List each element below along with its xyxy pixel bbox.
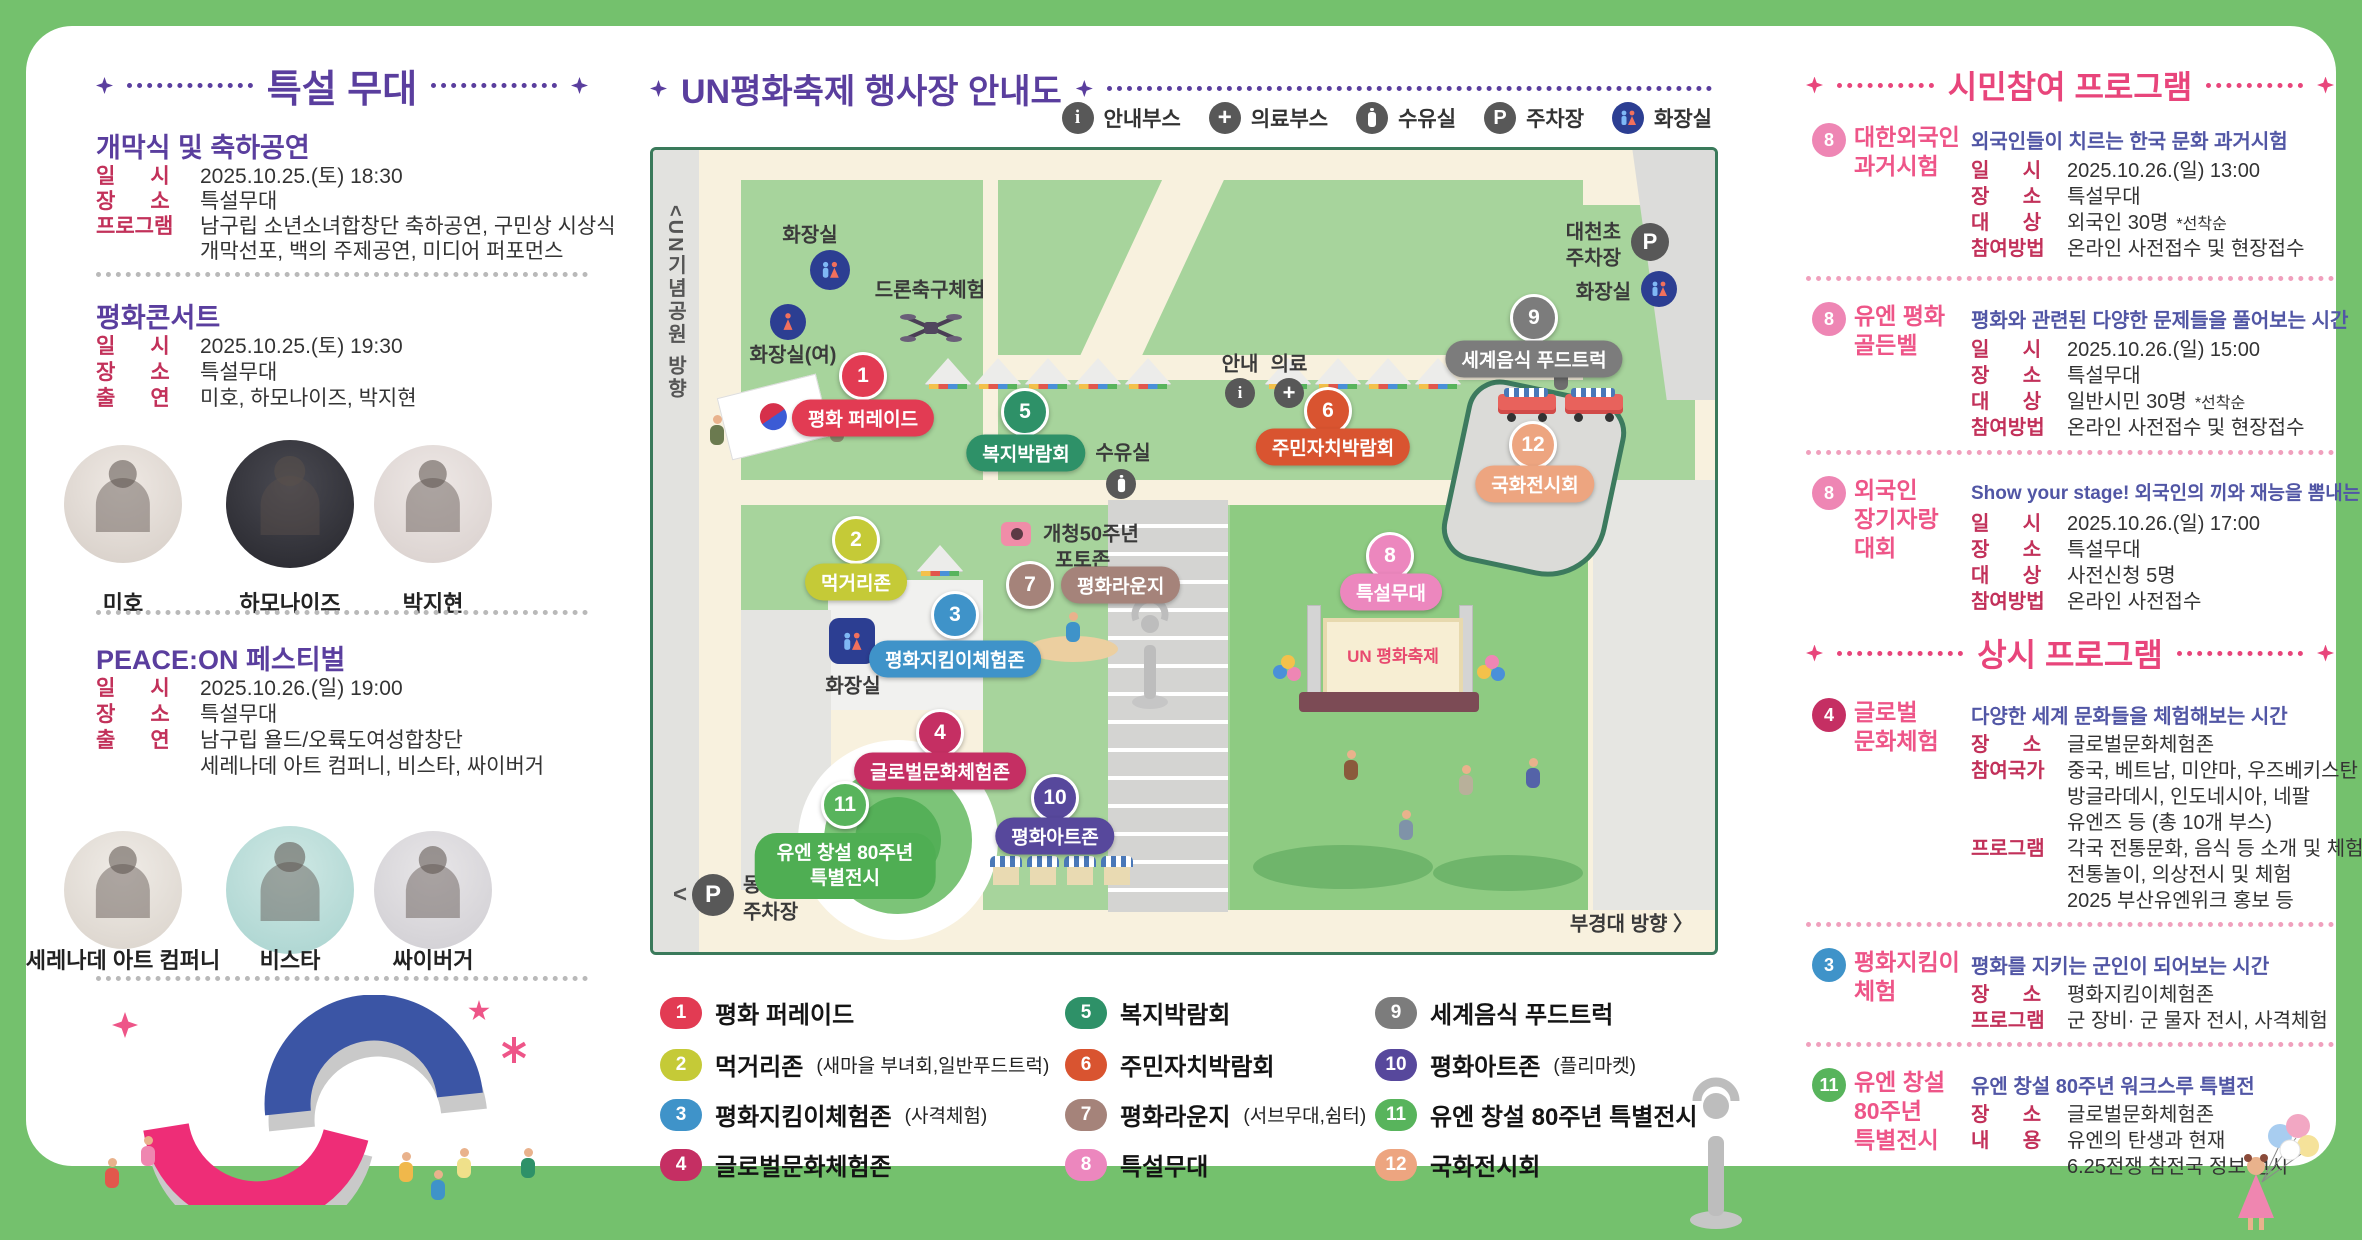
row-value: 군 장비· 군 물자 전시, 사격체험 bbox=[2067, 1004, 2328, 1033]
row-label: 장 소 bbox=[1971, 728, 2067, 757]
map-marker-11: 11 bbox=[821, 781, 869, 829]
dancing-person bbox=[1458, 765, 1474, 797]
legend-note: (서브무대,쉼터) bbox=[1243, 1101, 1366, 1128]
row-label: 내 용 bbox=[1971, 1124, 2067, 1153]
info-row: 장 소특설무대 bbox=[1971, 533, 2141, 562]
map-grass-block bbox=[998, 180, 1583, 355]
dotted-divider bbox=[1806, 450, 2334, 455]
row-value: 온라인 사전접수 및 현장접수 bbox=[2067, 232, 2304, 261]
row-value: 2025.10.26.(일) 17:00 bbox=[2067, 507, 2260, 536]
performer-name: 비스타 bbox=[260, 943, 321, 975]
legend-label: 평화지킴이체험존 bbox=[715, 1097, 892, 1132]
program-title-line: 과거시험 bbox=[1854, 152, 1969, 181]
program-title-line: 80주년 bbox=[1854, 1097, 1969, 1126]
legend-item: 10평화아트존(플리마켓) bbox=[1375, 1047, 1636, 1082]
dotted-leader bbox=[1837, 83, 1934, 88]
map-pill-3: 평화지킴이체험존 bbox=[869, 641, 1041, 678]
program-badge: 4 bbox=[1812, 698, 1846, 732]
legend-item: 2먹거리존(새마을 부녀회,일반푸드트럭) bbox=[660, 1047, 1049, 1082]
dotted-divider bbox=[1806, 276, 2334, 281]
person-silhouette-icon bbox=[96, 864, 150, 918]
program-title-line: 체험 bbox=[1854, 977, 1969, 1006]
tent-icon bbox=[1075, 358, 1121, 394]
crowd-person bbox=[456, 1148, 472, 1180]
legend-icon-label: 화장실 bbox=[1654, 103, 1712, 133]
row-label: 프로그램 bbox=[1971, 832, 2067, 861]
row-value: 온라인 사전접수 및 현장접수 bbox=[2067, 411, 2304, 440]
legend-badge: 3 bbox=[660, 1099, 702, 1131]
balloons-icon bbox=[1281, 655, 1295, 669]
info-row: 출 연미호, 하모나이즈, 박지현 bbox=[96, 382, 417, 412]
nursing-label: 수유실 bbox=[1095, 437, 1150, 466]
performer-photo bbox=[64, 445, 182, 563]
row-value: 2025 부산유엔위크 홍보 등 bbox=[2067, 884, 2294, 913]
person-silhouette-icon bbox=[261, 862, 320, 921]
info-row: 대 상사전신청 5명 bbox=[1971, 559, 2176, 588]
legend-item: 9세계음식 푸드트럭 bbox=[1375, 995, 1613, 1030]
map-hill bbox=[1253, 845, 1433, 889]
row-value: 유엔의 탄생과 현재 bbox=[2067, 1124, 2225, 1153]
medical-cross-icon: + bbox=[1209, 102, 1241, 134]
daecheon-parking-label: 주차장 bbox=[1566, 242, 1621, 271]
program-title: 대한외국인과거시험 bbox=[1854, 123, 1969, 181]
legend-badge: 7 bbox=[1065, 1099, 1107, 1131]
map-pill-9: 세계음식 푸드트럭 bbox=[1445, 341, 1622, 378]
map-pill-10: 평화아트존 bbox=[995, 818, 1114, 855]
food-truck-icon bbox=[1565, 388, 1623, 422]
diamond-icon bbox=[650, 80, 667, 97]
map-marker-1: 1 bbox=[839, 352, 887, 400]
dancing-person bbox=[1343, 750, 1359, 782]
bukyeong-direction-label: 부경대 방향 〉 bbox=[1570, 908, 1693, 937]
toilet-icon bbox=[1612, 102, 1644, 134]
right-header-2: 상시 프로그램 bbox=[1806, 630, 2334, 676]
program-desc: 외국인들이 치르는 한국 문화 과거시험 bbox=[1971, 125, 2288, 154]
dongmyeong-parking-label: 주차장 bbox=[743, 896, 798, 925]
market-stall-icon bbox=[1027, 856, 1059, 888]
row-label: 참여방법 bbox=[1971, 411, 2067, 440]
special-exhibit-line2: 특별전시 bbox=[777, 866, 914, 891]
left-panel-title: 특설 무대 bbox=[267, 58, 417, 113]
program-title: 유엔 평화골든벨 bbox=[1854, 302, 1969, 360]
person-silhouette-icon bbox=[406, 478, 460, 532]
toilet-icon bbox=[1641, 271, 1677, 307]
legend-label: 먹거리존 bbox=[715, 1047, 803, 1082]
program-desc: 평화를 지키는 군인이 되어보는 시간 bbox=[1971, 950, 2269, 979]
info-row: 유엔즈 등 (총 10개 부스) bbox=[2067, 806, 2272, 835]
dotted-divider bbox=[96, 610, 588, 615]
busker-person bbox=[1065, 612, 1081, 644]
legend-label: 유엔 창설 80주년 특별전시 bbox=[1430, 1097, 1698, 1132]
info-row: 참여방법온라인 사전접수 및 현장접수 bbox=[1971, 411, 2304, 440]
map-pill-2: 먹거리존 bbox=[805, 564, 907, 601]
legend-label: 평화 퍼레이드 bbox=[715, 995, 854, 1030]
info-row: 방글라데시, 인도네시아, 네팔 bbox=[2067, 780, 2310, 809]
program-title: 글로벌문화체험 bbox=[1854, 698, 1969, 756]
program-desc: 다양한 세계 문화들을 체험해보는 시간 bbox=[1971, 700, 2288, 729]
peace-statue-illustration bbox=[1686, 1058, 1746, 1235]
row-label: 출 연 bbox=[96, 382, 200, 412]
row-value: 세레나데 아트 컴퍼니, 비스타, 싸이버거 bbox=[200, 750, 544, 780]
legend-label: 국화전시회 bbox=[1430, 1147, 1540, 1182]
legend-badge: 2 bbox=[660, 1049, 702, 1081]
crowd-person bbox=[140, 1136, 156, 1168]
legend-item: 5복지박람회 bbox=[1065, 995, 1230, 1030]
map-legend-icon-row: i안내부스 +의료부스 수유실 P주차장 화장실 bbox=[1062, 102, 1712, 134]
dotted-divider bbox=[1806, 922, 2334, 927]
dotted-leader bbox=[431, 83, 557, 88]
legend-label: 특설무대 bbox=[1120, 1147, 1208, 1182]
info-row: 대 상외국인 30명*선착순 bbox=[1971, 206, 2227, 235]
person-silhouette-icon bbox=[96, 478, 150, 532]
legend-item: 4글로벌문화체험존 bbox=[660, 1147, 892, 1182]
market-stall-icon bbox=[1101, 856, 1133, 888]
row-label: 대 상 bbox=[1971, 559, 2067, 588]
diamond-icon bbox=[1806, 645, 1823, 662]
dotted-divider bbox=[96, 272, 588, 277]
info-row: 참여국가중국, 베트남, 미얀마, 우즈베키스탄 bbox=[1971, 754, 2358, 783]
toilet-right-label: 화장실 bbox=[1576, 276, 1631, 305]
venue-map: <UN기념공원 방향 화장실 드론축구체험 화장실(여) 1 평화 퍼레이드 5… bbox=[650, 147, 1718, 955]
row-label: 출 연 bbox=[96, 724, 200, 754]
dancing-person bbox=[1525, 758, 1541, 790]
row-value: 글로벌문화체험존 bbox=[2067, 728, 2214, 757]
dotted-leader bbox=[127, 83, 253, 88]
program-title-line: 유엔 창설 bbox=[1854, 1068, 1969, 1097]
peace-swirl-illustration bbox=[130, 995, 510, 1210]
row-value: 개막선포, 백의 주제공연, 미디어 퍼포먼스 bbox=[200, 235, 563, 265]
legend-label: 주민자치박람회 bbox=[1120, 1047, 1275, 1082]
map-title: UN평화축제 행사장 안내도 bbox=[681, 64, 1062, 113]
program-desc: 평화와 관련된 다양한 문제들을 풀어보는 시간 bbox=[1971, 304, 2348, 333]
program-desc: Show your stage! 외국인의 끼와 재능을 뽐내는 시간 bbox=[1971, 478, 2362, 505]
row-label: 장 소 bbox=[1971, 1098, 2067, 1127]
map-marker-7: 7 bbox=[1006, 561, 1054, 609]
legend-label: 복지박람회 bbox=[1120, 995, 1230, 1030]
bottle-icon bbox=[1106, 469, 1136, 499]
drone-icon bbox=[900, 310, 962, 351]
map-pill-5: 복지박람회 bbox=[966, 435, 1085, 472]
citizen-programs-title: 시민참여 프로그램 bbox=[1948, 62, 2192, 108]
right-header-1: 시민참여 프로그램 bbox=[1806, 62, 2334, 108]
crowd-person bbox=[430, 1170, 446, 1202]
info-row: 전통놀이, 의상전시 및 체험 bbox=[2067, 858, 2292, 887]
program-title: 평화지킴이체험 bbox=[1854, 948, 1969, 1006]
row-label: 일 시 bbox=[1971, 507, 2067, 536]
legend-note: (플리마켓) bbox=[1553, 1051, 1636, 1078]
parking-icon: P bbox=[1484, 102, 1516, 134]
legend-badge: 12 bbox=[1375, 1149, 1417, 1181]
legend-badge: 8 bbox=[1065, 1149, 1107, 1181]
photozone-label: 개청50주년 bbox=[1043, 518, 1139, 547]
info-row: 프로그램군 장비· 군 물자 전시, 사격체험 bbox=[1971, 1004, 2328, 1033]
row-value: 특설무대 bbox=[2067, 180, 2141, 209]
legend-item: 12국화전시회 bbox=[1375, 1147, 1540, 1182]
market-stall-icon bbox=[990, 856, 1022, 888]
legend-item: 6주민자치박람회 bbox=[1065, 1047, 1275, 1082]
map-pill-1: 평화 퍼레이드 bbox=[792, 400, 934, 437]
program-title-line: 평화지킴이 bbox=[1854, 948, 1969, 977]
legend-item: 7평화라운지(서브무대,쉼터) bbox=[1065, 1097, 1366, 1132]
legend-note: (새마을 부녀회,일반푸드트럭) bbox=[816, 1051, 1049, 1078]
stage-truss bbox=[1307, 605, 1321, 699]
row-label: 프로그램 bbox=[96, 210, 200, 240]
special-exhibit-line1: 유엔 창설 80주년 bbox=[777, 841, 914, 866]
performer-photo bbox=[374, 831, 492, 949]
balloons-icon bbox=[1485, 655, 1499, 669]
map-marker-9: 9 bbox=[1510, 294, 1558, 342]
row-value: 글로벌문화체험존 bbox=[2067, 1098, 2214, 1127]
row-value: 외국인 30명 bbox=[2067, 206, 2168, 235]
row-value: 평화지킴이체험존 bbox=[2067, 978, 2214, 1007]
drone-soccer-label: 드론축구체험 bbox=[875, 274, 985, 303]
program-badge: 8 bbox=[1812, 302, 1846, 336]
regular-programs-title: 상시 프로그램 bbox=[1977, 630, 2163, 676]
row-value: 2025.10.26.(일) 15:00 bbox=[2067, 333, 2260, 362]
row-label: 참여방법 bbox=[1971, 585, 2067, 614]
performer-photo bbox=[226, 826, 354, 954]
legend-item: 3평화지킴이체험존(사격체험) bbox=[660, 1097, 987, 1132]
crowd-person bbox=[520, 1148, 536, 1180]
legend-parking: P주차장 bbox=[1484, 102, 1584, 134]
row-label: 장 소 bbox=[1971, 180, 2067, 209]
program-badge: 11 bbox=[1812, 1068, 1846, 1102]
info-icon: i bbox=[1062, 102, 1094, 134]
legend-item: 8특설무대 bbox=[1065, 1147, 1208, 1182]
program-title-line: 문화체험 bbox=[1854, 727, 1969, 756]
row-label: 대 상 bbox=[1971, 206, 2067, 235]
dotted-leader bbox=[1837, 651, 1963, 656]
program-title: 외국인장기자랑대회 bbox=[1854, 476, 1969, 563]
program-title-line: 특별전시 bbox=[1854, 1126, 1969, 1155]
tent-icon bbox=[917, 545, 963, 581]
row-label: 장 소 bbox=[1971, 359, 2067, 388]
row-value: 미호, 하모나이즈, 박지현 bbox=[200, 382, 417, 412]
performer-photo bbox=[374, 445, 492, 563]
program-desc: 유엔 창설 80주년 워크스루 특별전 bbox=[1971, 1070, 2255, 1099]
legend-badge: 11 bbox=[1375, 1099, 1417, 1131]
map-pill-6: 주민자치박람회 bbox=[1256, 429, 1410, 466]
program-title: 유엔 창설80주년특별전시 bbox=[1854, 1068, 1969, 1155]
program-title-line: 외국인 bbox=[1854, 476, 1969, 505]
map-marker-5: 5 bbox=[1001, 388, 1049, 436]
info-row: 2025 부산유엔위크 홍보 등 bbox=[2067, 884, 2294, 913]
legend-icon-label: 안내부스 bbox=[1104, 103, 1181, 133]
row-label: 대 상 bbox=[1971, 385, 2067, 414]
dotted-leader bbox=[2206, 83, 2303, 88]
statue-icon bbox=[1128, 590, 1172, 715]
info-row: 세레나데 아트 컴퍼니, 비스타, 싸이버거 bbox=[200, 750, 544, 780]
info-row: 장 소평화지킴이체험존 bbox=[1971, 978, 2214, 1007]
info-row: 일 시2025.10.26.(일) 15:00 bbox=[1971, 333, 2260, 362]
legend-item: 1평화 퍼레이드 bbox=[660, 995, 854, 1030]
program-title-line: 유엔 평화 bbox=[1854, 302, 1969, 331]
map-pill-8: 특설무대 bbox=[1340, 574, 1442, 611]
tent-icon bbox=[925, 358, 971, 394]
map-pill-7: 평화라운지 bbox=[1061, 567, 1180, 604]
chevron-left-icon: < bbox=[673, 881, 687, 909]
special-exhibit-label: 유엔 창설 80주년 특별전시 bbox=[755, 833, 936, 899]
dotted-leader bbox=[1107, 86, 1712, 91]
map-pill-4: 글로벌문화체험존 bbox=[854, 753, 1026, 790]
parking-icon: P bbox=[1631, 223, 1669, 261]
daecheon-parking-label: 대천초 bbox=[1566, 216, 1621, 245]
program-badge: 8 bbox=[1812, 123, 1846, 157]
info-row: 내 용유엔의 탄생과 현재 bbox=[1971, 1124, 2225, 1153]
row-value: 2025.10.26.(일) 13:00 bbox=[2067, 154, 2260, 183]
medical-label: 의료 bbox=[1271, 348, 1308, 377]
dotted-divider bbox=[1806, 1042, 2334, 1047]
program-badge: 3 bbox=[1812, 948, 1846, 982]
performer-photo bbox=[64, 831, 182, 949]
info-row: 장 소글로벌문화체험존 bbox=[1971, 728, 2214, 757]
map-marker-12: 12 bbox=[1509, 421, 1557, 469]
row-value: 특설무대 bbox=[2067, 359, 2141, 388]
legend-icon-label: 의료부스 bbox=[1251, 103, 1328, 133]
dancing-person bbox=[1398, 810, 1414, 842]
girl-with-balloons-illustration bbox=[2214, 1108, 2324, 1239]
info-row: 대 상일반시민 30명*선착순 bbox=[1971, 385, 2245, 414]
person-silhouette-icon bbox=[261, 476, 320, 535]
toilet-label: 화장실 bbox=[782, 219, 837, 248]
left-panel-header: 특설 무대 bbox=[96, 58, 588, 113]
info-row: 참여방법온라인 사전접수 bbox=[1971, 585, 2201, 614]
crowd-person bbox=[104, 1158, 120, 1190]
row-label: 일 시 bbox=[1971, 333, 2067, 362]
row-value: 방글라데시, 인도네시아, 네팔 bbox=[2067, 780, 2310, 809]
row-value: 온라인 사전접수 bbox=[2067, 585, 2201, 614]
map-hill bbox=[1433, 855, 1583, 891]
performer-name: 싸이버거 bbox=[393, 943, 474, 975]
map-marker-4: 4 bbox=[916, 709, 964, 757]
dotted-divider bbox=[96, 976, 588, 981]
row-label: 장 소 bbox=[1971, 533, 2067, 562]
legend-icon-label: 주차장 bbox=[1526, 103, 1584, 133]
food-truck-icon bbox=[1498, 388, 1556, 422]
map-marker-3: 3 bbox=[931, 591, 979, 639]
medical-cross-icon: + bbox=[1274, 378, 1304, 408]
info-row: 프로그램각국 전통문화, 음식 등 소개 및 체험 bbox=[1971, 832, 2362, 861]
row-value: 사전신청 5명 bbox=[2067, 559, 2176, 588]
row-label: 참여방법 bbox=[1971, 232, 2067, 261]
camera-lens bbox=[1011, 528, 1023, 540]
program-title-line: 대한외국인 bbox=[1854, 123, 1969, 152]
direction-un-park: <UN기념공원 방향 bbox=[661, 205, 690, 455]
tent-icon bbox=[975, 358, 1021, 394]
legend-badge: 1 bbox=[660, 997, 702, 1029]
diamond-icon bbox=[2317, 77, 2334, 94]
info-row: 장 소글로벌문화체험존 bbox=[1971, 1098, 2214, 1127]
diamond-icon bbox=[96, 77, 113, 94]
performer-name: 세레나데 아트 컴퍼니 bbox=[26, 943, 220, 975]
stage-screen: UN 평화축제 bbox=[1323, 618, 1463, 696]
row-label: 참여국가 bbox=[1971, 754, 2067, 783]
legend-label: 평화아트존 bbox=[1430, 1047, 1540, 1082]
row-value: 특설무대 bbox=[2067, 533, 2141, 562]
tent-icon bbox=[1125, 358, 1171, 394]
info-row: 참여방법온라인 사전접수 및 현장접수 bbox=[1971, 232, 2304, 261]
map-marker-2: 2 bbox=[832, 516, 880, 564]
legend-note: (사격체험) bbox=[905, 1101, 988, 1128]
legend-badge: 4 bbox=[660, 1149, 702, 1181]
program-badge: 8 bbox=[1812, 476, 1846, 510]
legend-label: 평화라운지 bbox=[1120, 1097, 1230, 1132]
toilet-women-icon bbox=[770, 304, 806, 340]
map-marker-10: 10 bbox=[1031, 774, 1079, 822]
toilet-icon bbox=[810, 250, 850, 290]
legend-nursing: 수유실 bbox=[1356, 102, 1456, 134]
parking-icon: P bbox=[692, 874, 734, 916]
legend-badge: 6 bbox=[1065, 1049, 1107, 1081]
toilet-mid-label: 화장실 bbox=[825, 670, 880, 699]
taegeuk-icon bbox=[755, 398, 792, 435]
stage-base bbox=[1299, 692, 1479, 712]
legend-item: 11유엔 창설 80주년 특별전시 bbox=[1375, 1097, 1698, 1132]
program-title-line: 대회 bbox=[1854, 534, 1969, 563]
diamond-icon bbox=[1076, 80, 1093, 97]
legend-info: i안내부스 bbox=[1062, 102, 1181, 134]
info-row: 장 소특설무대 bbox=[1971, 180, 2141, 209]
legend-toilet: 화장실 bbox=[1612, 102, 1712, 134]
map-road-right bbox=[1593, 480, 1715, 910]
legend-badge: 10 bbox=[1375, 1049, 1417, 1081]
info-icon: i bbox=[1225, 378, 1255, 408]
program-title-line: 장기자랑 bbox=[1854, 505, 1969, 534]
program-title-line: 골든벨 bbox=[1854, 331, 1969, 360]
legend-icon-label: 수유실 bbox=[1398, 103, 1456, 133]
legend-label: 글로벌문화체험존 bbox=[715, 1147, 892, 1182]
program-title-line: 글로벌 bbox=[1854, 698, 1969, 727]
legend-badge: 9 bbox=[1375, 997, 1417, 1029]
row-note: *선착순 bbox=[2176, 210, 2226, 234]
toilet-women-label: 화장실(여) bbox=[750, 339, 837, 368]
camera-icon bbox=[1001, 522, 1031, 546]
row-value: 일반시민 30명 bbox=[2067, 385, 2187, 414]
row-label: 프로그램 bbox=[1971, 1004, 2067, 1033]
info-row: 일 시2025.10.26.(일) 17:00 bbox=[1971, 507, 2260, 536]
parade-person bbox=[709, 415, 725, 447]
row-note: *선착순 bbox=[2195, 389, 2245, 413]
performer-photo bbox=[226, 440, 354, 568]
map-pill-12: 국화전시회 bbox=[1475, 466, 1594, 503]
diamond-icon bbox=[2317, 645, 2334, 662]
info-row: 장 소특설무대 bbox=[1971, 359, 2141, 388]
info-row: 개막선포, 백의 주제공연, 미디어 퍼포먼스 bbox=[200, 235, 563, 265]
info-label: 안내 bbox=[1222, 348, 1259, 377]
legend-label: 세계음식 푸드트럭 bbox=[1430, 995, 1613, 1030]
diamond-icon bbox=[1806, 77, 1823, 94]
row-value: 전통놀이, 의상전시 및 체험 bbox=[2067, 858, 2292, 887]
legend-medical: +의료부스 bbox=[1209, 102, 1328, 134]
dotted-leader bbox=[2177, 651, 2303, 656]
row-label: 일 시 bbox=[1971, 154, 2067, 183]
row-label: 장 소 bbox=[1971, 978, 2067, 1007]
info-row: 일 시2025.10.26.(일) 13:00 bbox=[1971, 154, 2260, 183]
toilet-icon bbox=[829, 618, 875, 664]
tent-icon bbox=[1365, 358, 1411, 394]
row-value: 각국 전통문화, 음식 등 소개 및 체험 bbox=[2067, 832, 2362, 861]
row-value: 중국, 베트남, 미얀마, 우즈베키스탄 bbox=[2067, 754, 2358, 783]
crowd-person bbox=[398, 1152, 414, 1184]
market-stall-icon bbox=[1064, 856, 1096, 888]
diamond-icon bbox=[571, 77, 588, 94]
legend-badge: 5 bbox=[1065, 997, 1107, 1029]
bottle-icon bbox=[1356, 102, 1388, 134]
row-value: 유엔즈 등 (총 10개 부스) bbox=[2067, 806, 2272, 835]
person-silhouette-icon bbox=[406, 864, 460, 918]
